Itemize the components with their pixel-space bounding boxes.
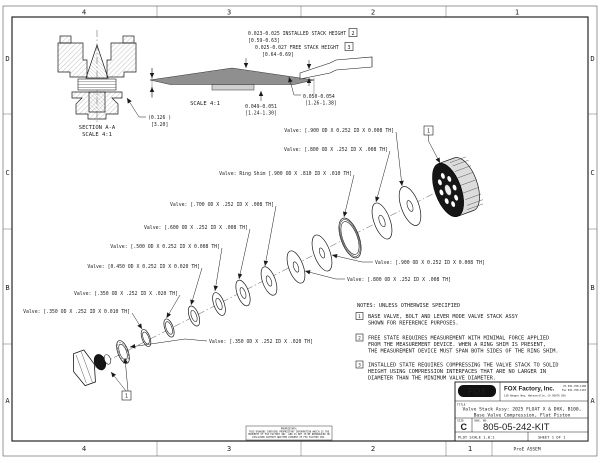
valve-label: Valve: [.600 OD X .252 ID X .008 TH]	[144, 225, 248, 231]
balloon-number: 1	[125, 394, 128, 400]
valve-label: Valve: [.700 OD X .252 ID X .008 TH]	[170, 202, 274, 208]
stack-hub	[212, 85, 254, 91]
valve-disc	[395, 184, 426, 229]
balloon-number: 1	[427, 129, 430, 135]
company-address: 130 Hangar Way, Watsonville, CA 95076 US…	[504, 394, 566, 398]
notes-header: NOTES: UNLESS OTHERWISE SPECIFIED	[357, 303, 460, 309]
installed-stack-profile	[150, 68, 314, 85]
free-height-mm: [0.64-0.69]	[262, 52, 294, 58]
section-tab-left	[60, 36, 71, 43]
note-line: FROM THE MEASUREMENT DEVICE. WHEN A RING…	[368, 342, 546, 348]
zone-row-c-r: C	[590, 168, 594, 177]
section-dim-leader	[127, 98, 146, 117]
free-height-value: 0.025-0.027 FREE STACK HEIGHT	[255, 45, 339, 51]
company-phone: Ph 831-768-1100	[563, 384, 586, 388]
drawing-title-line1: Valve Stack Assy: 2025 FLOAT X & DHX, B1…	[463, 407, 582, 413]
valve-label: Valve: [.800 OD X .252 ID X .008 TH]	[347, 277, 451, 283]
note-line: FREE STATE REQUIRES MEASUREMENT WITH MIN…	[368, 336, 549, 342]
zone-row-d: D	[5, 54, 9, 63]
section-scale: SCALE 4:1	[82, 132, 112, 138]
valve-disc	[186, 305, 202, 328]
valve-label: Valve: [0.450 OD X 0.252 ID X 0.020 TH]	[87, 264, 200, 270]
notes-block: NOTES: UNLESS OTHERWISE SPECIFIED 1 BASE…	[356, 303, 559, 382]
dwg-no-value: 805-05-242-KIT	[483, 422, 550, 433]
valve-disc	[233, 278, 253, 307]
piston	[426, 153, 486, 220]
plot-scale: PLOT SCALE 1.0:1	[458, 435, 495, 440]
zone-col-2b: 2	[371, 444, 375, 453]
section-view: SECTION A-A SCALE 4:1 (0.126 ) [3.20]	[58, 30, 171, 138]
company-name: FOX Factory, Inc.	[504, 386, 555, 393]
valve-disc	[283, 249, 308, 286]
valve-label: Valve: [.500 OD X 0.252 ID X 0.008 TH]	[110, 244, 220, 250]
balloon-flag-bolt: 1	[111, 358, 131, 400]
valve-label: Valve: [.900 OD X 0.252 ID X 0.008 TH]	[284, 128, 394, 134]
drawing-canvas: 4 3 2 1 4 3 2 1 D C B A D C B A ProE ASS…	[0, 0, 600, 463]
section-dim-in: (0.126 )	[148, 115, 171, 121]
note-3-flag: 3	[358, 363, 361, 369]
company-fax: Fax 831-768-1110	[562, 388, 587, 392]
drawing-sheet: 4 3 2 1 4 3 2 1 D C B A D C B A ProE ASS…	[0, 0, 600, 463]
valve-disc	[368, 200, 396, 241]
zone-col-1: 1	[515, 8, 519, 17]
valve-label: Valve: [.800 OD X .252 ID X .008 TH]	[284, 147, 388, 153]
ring-shim	[334, 215, 365, 261]
installed-flag: 2	[351, 31, 354, 37]
free-flag: 3	[347, 45, 350, 51]
section-body-right	[107, 43, 136, 77]
section-title: SECTION A-A	[79, 125, 116, 131]
valve-disc	[308, 232, 336, 273]
balloon-flag-piston: 1	[424, 126, 440, 163]
plot-note: ProE ASSEM	[513, 447, 540, 453]
stack-bolt	[68, 342, 116, 387]
section-tab-right	[123, 36, 134, 43]
title-label: TITLE	[457, 403, 466, 407]
section-stem	[89, 92, 105, 112]
note-2-flag: 2	[358, 336, 361, 342]
zone-row-c: C	[5, 168, 9, 177]
note-line: THE MEASUREMENT DEVICE MUST SPAN BOTH SI…	[368, 349, 559, 355]
note-line: HEIGHT USING COMPRESSION INTERFACES THAT…	[368, 369, 546, 375]
title-block: FOX FOX Factory, Inc. 130 Hangar Way, Wa…	[455, 382, 588, 441]
stack-labels: Valve: [.900 OD X 0.252 ID X 0.008 TH] V…	[23, 128, 485, 345]
installed-height-mm: [0.59-0.63]	[248, 38, 280, 44]
dim-a-in: 0.049-0.051	[245, 104, 277, 110]
dim-b-mm: [1.26-1.38]	[305, 101, 337, 107]
note-line: BASE VALVE, BOLT AND LEVER MODE VALVE ST…	[368, 314, 519, 320]
sheet-number: SHEET 1 OF 1	[538, 435, 566, 440]
section-body-left	[58, 43, 87, 77]
valve-disc	[258, 265, 280, 298]
zone-col-1b: 1	[468, 444, 472, 453]
valve-label: Valve: [.350 OD X .252 ID X 0.010 TH]	[23, 309, 130, 315]
note-line: SHOWN FOR REFERENCE PURPOSES.	[368, 321, 459, 327]
proprietary-notice: PROPRIETARY: THIS DRAWING CONTAINS PROPR…	[246, 426, 332, 440]
zone-col-3: 3	[227, 8, 231, 17]
zone-col-4: 4	[82, 8, 86, 17]
valve-disc	[162, 318, 176, 339]
valve-label: Valve: [.350 OD X .252 ID X .020 TH]	[74, 291, 178, 297]
size-value: C	[461, 422, 468, 432]
valve-label-ring-shim: Valve: Ring Shim [.900 OD X .810 ID X .0…	[219, 171, 352, 177]
note-line: INSTALLED STATE REQUIRES COMPRESSING THE…	[368, 363, 559, 369]
zone-row-d-r: D	[590, 54, 594, 63]
fox-logo: FOX	[458, 385, 496, 397]
proprietary-line: DISCLOSED WITHOUT WRITTEN CONSENT OF FOX…	[252, 436, 325, 439]
dim-b-in: 0.050-0.054	[303, 94, 335, 100]
installed-height-value: 0.023-0.025 INSTALLED STACK HEIGHT	[248, 31, 346, 37]
fox-logo-text: FOX	[468, 386, 487, 396]
zone-row-b-r: B	[590, 283, 594, 292]
valve-disc	[210, 291, 228, 317]
note-line: DIAMETER THAN THE MINIMUM VALVE DIAMETER…	[368, 376, 496, 382]
detail-scale: SCALE 4:1	[190, 101, 220, 107]
zone-row-a-r: A	[590, 396, 595, 405]
drawing-title-line2: Base Valve Compression, Flat Piston	[474, 413, 571, 419]
zone-col-4b: 4	[82, 444, 86, 453]
free-stack-profile	[300, 57, 372, 79]
zone-row-b: B	[5, 283, 9, 292]
section-dim-mm: [3.20]	[151, 122, 168, 128]
valve-label: Valve: [.350 OD X .252 ID X .020 TH]	[209, 339, 313, 345]
zone-col-3b: 3	[227, 444, 231, 453]
exploded-stack: Valve: [.900 OD X 0.252 ID X 0.008 TH] V…	[23, 126, 486, 400]
dim-a-mm: [1.24-1.30]	[245, 111, 277, 117]
zone-col-2: 2	[371, 8, 375, 17]
note-1-flag: 1	[358, 314, 361, 320]
valve-label: Valve: [.900 OD X 0.252 ID X 0.008 TH]	[375, 260, 485, 266]
detail-view: SCALE 4:1 0.023-0.025 INSTALLED STACK HE…	[150, 29, 372, 117]
zone-row-a: A	[5, 396, 10, 405]
stack-washer	[114, 339, 132, 365]
section-cone	[86, 45, 108, 78]
